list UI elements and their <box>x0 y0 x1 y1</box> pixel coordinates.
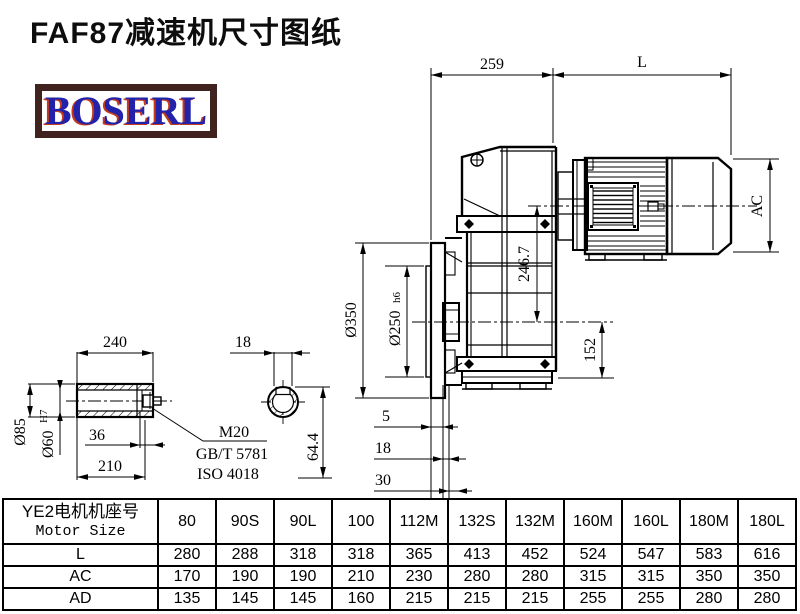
dim-152: 152 <box>582 338 599 362</box>
table-cell: 280 <box>506 566 564 588</box>
dim-5: 5 <box>382 408 390 425</box>
motor-size-header: YE2电机机座号Motor Size <box>3 499 158 544</box>
table-cell: 145 <box>274 588 332 610</box>
column-header: 132S <box>448 499 506 544</box>
dim-60: Ø60 <box>40 430 57 458</box>
motor-size-table: YE2电机机座号Motor Size8090S90L100112M132S132… <box>2 498 797 611</box>
column-header: 90S <box>216 499 274 544</box>
m20-leader-line <box>152 408 267 441</box>
table-cell: 318 <box>274 544 332 566</box>
column-header: 90L <box>274 499 332 544</box>
main-dimension-labels: 259 L AC 246.7 152 Ø350 Ø250 h6 5 18 30 <box>343 54 766 489</box>
header-en: Motor Size <box>4 522 157 542</box>
table-cell: 288 <box>216 544 274 566</box>
table-cell: 280 <box>158 544 216 566</box>
table-cell: 145 <box>216 588 274 610</box>
dim-250: Ø250 <box>387 310 404 346</box>
table-cell: 135 <box>158 588 216 610</box>
column-header: 180M <box>680 499 738 544</box>
table-cell: 315 <box>622 566 680 588</box>
column-header: 132M <box>506 499 564 544</box>
table-cell: 160 <box>332 588 390 610</box>
motor-size-table-body: YE2电机机座号Motor Size8090S90L100112M132S132… <box>3 499 796 610</box>
column-header: 80 <box>158 499 216 544</box>
table-row: AC170190190210230280280315315350350 <box>3 566 796 588</box>
column-header: 100 <box>332 499 390 544</box>
table-cell: 315 <box>564 566 622 588</box>
label-m20: M20 <box>219 424 249 441</box>
table-cell: 215 <box>390 588 448 610</box>
table-cell: 318 <box>332 544 390 566</box>
label-gbt-5781: GB/T 5781 <box>196 446 268 463</box>
dim-AC: AC <box>749 195 766 217</box>
table-cell: 190 <box>216 566 274 588</box>
table-row: AD135145145160215215215255255280280 <box>3 588 796 610</box>
dim-60-sup: H7 <box>38 409 50 423</box>
table-cell: 452 <box>506 544 564 566</box>
page: 259 L AC 246.7 152 Ø350 Ø250 h6 5 18 30 <box>0 0 800 614</box>
table-cell: 215 <box>448 588 506 610</box>
table-cell: 215 <box>506 588 564 610</box>
table-cell: 547 <box>622 544 680 566</box>
dim-18-key: 18 <box>235 334 251 351</box>
dim-250-suffix: h6 <box>391 292 403 304</box>
shaft-detail <box>66 384 172 417</box>
dimension-drawing: 259 L AC 246.7 152 Ø350 Ø250 h6 5 18 30 <box>0 0 800 500</box>
table-cell: 413 <box>448 544 506 566</box>
brand-logo-text: BOSERL <box>45 91 207 131</box>
dim-259: 259 <box>480 56 504 73</box>
row-label: AC <box>3 566 158 588</box>
dim-240: 240 <box>103 334 127 351</box>
page-title: FAF87减速机尺寸图纸 <box>30 8 342 52</box>
table-cell: 616 <box>738 544 796 566</box>
table-cell: 350 <box>738 566 796 588</box>
dim-36: 36 <box>89 427 105 444</box>
table-cell: 255 <box>622 588 680 610</box>
dim-18-flange: 18 <box>375 440 391 457</box>
column-header: 112M <box>390 499 448 544</box>
dim-L: L <box>637 54 647 71</box>
table-cell: 583 <box>680 544 738 566</box>
table-cell: 350 <box>680 566 738 588</box>
dim-210: 210 <box>98 458 122 475</box>
dim-85: Ø85 <box>12 418 29 446</box>
column-header: 160L <box>622 499 680 544</box>
brand-logo: BOSERL <box>35 84 217 138</box>
table-cell: 255 <box>564 588 622 610</box>
table-cell: 170 <box>158 566 216 588</box>
dim-30: 30 <box>375 472 391 489</box>
label-iso-4018: ISO 4018 <box>197 466 259 483</box>
header-cn: YE2电机机座号 <box>4 502 157 522</box>
main-dimensions <box>355 68 779 494</box>
motor-nameplate <box>588 183 638 230</box>
gearbox-housing <box>457 147 556 389</box>
table-cell: 210 <box>332 566 390 588</box>
dim-246-7: 246.7 <box>516 246 533 282</box>
dim-64-4: 64.4 <box>305 433 322 461</box>
motor <box>558 158 731 260</box>
eyebolt-icon <box>471 154 483 166</box>
table-header-row: YE2电机机座号Motor Size8090S90L100112M132S132… <box>3 499 796 544</box>
row-label: L <box>3 544 158 566</box>
table-cell: 280 <box>680 588 738 610</box>
table-cell: 230 <box>390 566 448 588</box>
column-header: 180L <box>738 499 796 544</box>
table-row: L280288318318365413452524547583616 <box>3 544 796 566</box>
table-cell: 280 <box>738 588 796 610</box>
dim-350: Ø350 <box>343 302 360 338</box>
table-cell: 524 <box>564 544 622 566</box>
table-cell: 280 <box>448 566 506 588</box>
table-cell: 365 <box>390 544 448 566</box>
column-header: 160M <box>564 499 622 544</box>
row-label: AD <box>3 588 158 610</box>
table-cell: 190 <box>274 566 332 588</box>
